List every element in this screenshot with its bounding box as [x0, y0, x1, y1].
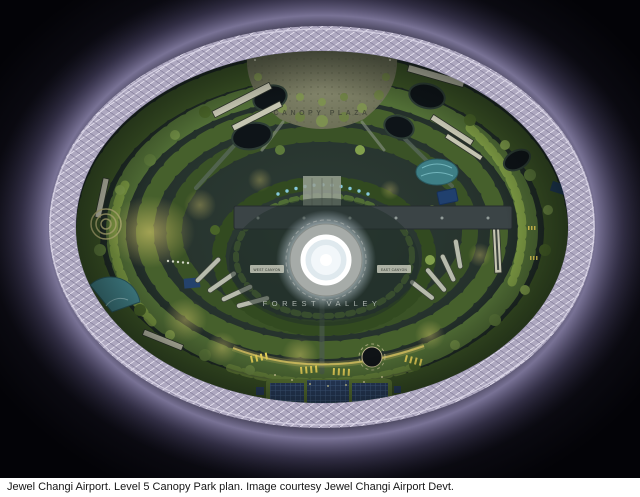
canopy-park-plan: CANOPY PLAZA — [0, 0, 640, 478]
canopy-park-plan-image: CANOPY PLAZA — [0, 0, 640, 478]
screenshot: CANOPY PLAZA — [0, 0, 640, 497]
caption-text: Jewel Changi Airport. Level 5 Canopy Par… — [7, 481, 454, 493]
image-caption: Jewel Changi Airport. Level 5 Canopy Par… — [0, 478, 640, 497]
interior-vignette — [76, 51, 568, 403]
